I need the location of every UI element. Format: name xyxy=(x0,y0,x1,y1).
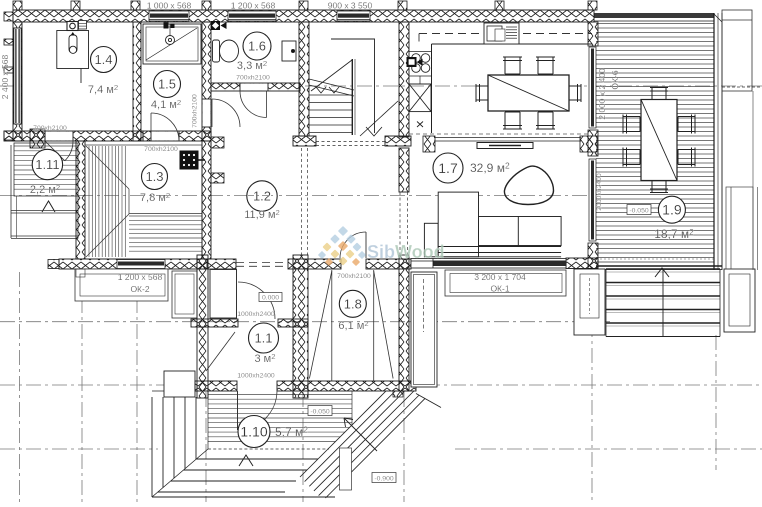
svg-text:700xh2100: 700xh2100 xyxy=(33,125,67,132)
svg-text:700xh2100: 700xh2100 xyxy=(236,75,270,82)
svg-text:1.6: 1.6 xyxy=(248,39,266,54)
svg-text:2 000 x 2 400: 2 000 x 2 400 xyxy=(597,68,607,120)
svg-text:1000xh2400: 1000xh2400 xyxy=(237,373,275,380)
svg-text:1.4: 1.4 xyxy=(94,52,112,67)
svg-text:1.11: 1.11 xyxy=(35,157,59,172)
svg-text:0.000: 0.000 xyxy=(262,294,279,301)
svg-text:-0.050: -0.050 xyxy=(629,207,648,214)
svg-text:900 x 3 550: 900 x 3 550 xyxy=(328,1,373,11)
svg-text:6,1 м2: 6,1 м2 xyxy=(338,319,368,332)
svg-text:4,1 м2: 4,1 м2 xyxy=(151,98,181,111)
svg-text:ОК-2: ОК-2 xyxy=(130,284,149,294)
svg-text:-0.050: -0.050 xyxy=(310,408,329,415)
svg-text:1.5: 1.5 xyxy=(158,77,176,92)
svg-text:7,4 м2: 7,4 м2 xyxy=(88,83,118,96)
svg-text:700xh2100: 700xh2100 xyxy=(144,146,178,153)
svg-text:ОК-1: ОК-1 xyxy=(490,284,509,294)
svg-text:2000xh2400: 2000xh2400 xyxy=(596,173,603,211)
svg-text:700xh2100: 700xh2100 xyxy=(192,94,199,128)
svg-text:7,8 м2: 7,8 м2 xyxy=(140,191,170,204)
svg-text:11,9 м2: 11,9 м2 xyxy=(244,208,280,221)
svg-text:1.3: 1.3 xyxy=(145,169,163,184)
svg-text:1.10: 1.10 xyxy=(240,424,267,440)
svg-text:2,2 м2: 2,2 м2 xyxy=(30,183,60,196)
svg-text:1 200 x 568: 1 200 x 568 xyxy=(118,272,163,282)
svg-text:1.8: 1.8 xyxy=(344,296,362,311)
svg-text:3,3 м2: 3,3 м2 xyxy=(237,59,267,72)
svg-text:2 400 x 568: 2 400 x 568 xyxy=(0,55,10,100)
svg-text:1.2: 1.2 xyxy=(253,189,271,204)
svg-text:1.1: 1.1 xyxy=(254,331,272,346)
svg-text:18,7 м2: 18,7 м2 xyxy=(654,227,694,241)
svg-text:-0.900: -0.900 xyxy=(374,475,393,482)
svg-text:1000xh2400: 1000xh2400 xyxy=(237,311,275,318)
svg-text:1 200 x 568: 1 200 x 568 xyxy=(231,1,276,11)
svg-text:32,9 м2: 32,9 м2 xyxy=(470,161,510,176)
svg-text:700xh2100: 700xh2100 xyxy=(337,273,371,280)
svg-text:1.9: 1.9 xyxy=(662,202,682,218)
svg-text:1.7: 1.7 xyxy=(438,160,458,176)
svg-text:1 000 x 568: 1 000 x 568 xyxy=(147,1,192,11)
svg-text:ОК-6: ОК-6 xyxy=(610,70,620,89)
svg-text:SibWood: SibWood xyxy=(367,242,445,262)
svg-text:3 200 x 1 704: 3 200 x 1 704 xyxy=(474,272,526,282)
